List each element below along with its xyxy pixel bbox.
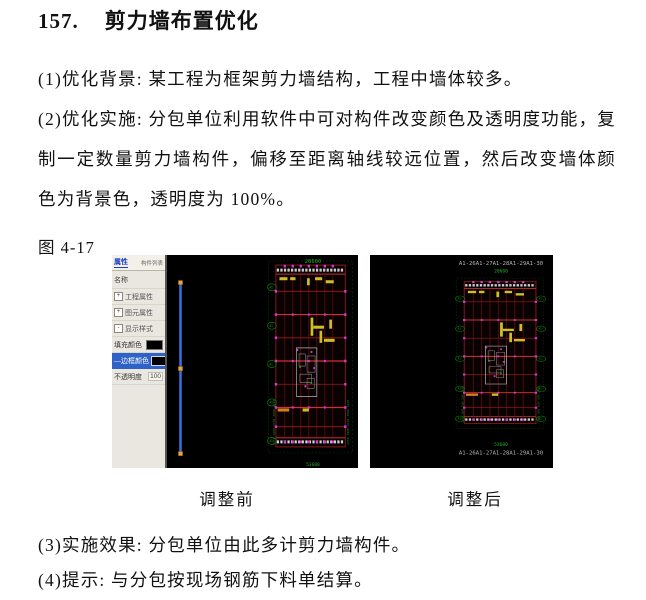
heading-title: 剪力墙布置优化 (105, 9, 259, 33)
dimension-top: 20600 (305, 259, 322, 265)
expand-icon[interactable]: + (114, 308, 123, 317)
floor-plan-after: 2450 3800 2450 3800 24502450 3800 2450 3… (455, 278, 545, 428)
tab-properties[interactable]: 属性 (114, 257, 128, 268)
property-group-element[interactable]: + 图元属性 (112, 305, 165, 321)
heading-number: 157. (38, 9, 79, 33)
svg-text:A1-: A1- (458, 387, 463, 391)
property-row-name[interactable]: 名称 (112, 271, 165, 289)
expand-icon[interactable]: + (114, 292, 123, 301)
fill-color-swatch[interactable] (146, 340, 163, 350)
svg-text:A1-: A1- (458, 297, 463, 301)
border-color-swatch[interactable] (151, 356, 165, 366)
properties-panel-header: 属性 构件列表 (112, 255, 165, 271)
screenshot-before: 属性 构件列表 名称 + 工程属性 + 图元属性 - 显示样式 填充颜色 —边框… (112, 255, 358, 468)
paragraph-tip: (4)提示: 与分包按现场钢筋下料单结算。 (38, 560, 616, 600)
cad-canvas-after: A1-26A1-27A1-28A1-29A1-30 20600 2450 380… (370, 255, 553, 468)
caption-after: 调整后 (420, 486, 530, 510)
paragraph-implementation: (2)优化实施: 分包单位利用软件中可对构件改变颜色及透明度功能，复制一定数量剪… (38, 99, 616, 219)
paragraph-effect: (3)实施效果: 分包单位由此多计剪力墙构件。 (38, 525, 616, 565)
figure-4-17: 属性 构件列表 名称 + 工程属性 + 图元属性 - 显示样式 填充颜色 —边框… (112, 255, 553, 468)
svg-text:A1-: A1- (269, 439, 274, 443)
property-group-display-style[interactable]: - 显示样式 (112, 321, 165, 337)
svg-text:A1-: A1- (458, 417, 463, 421)
property-row-opacity[interactable]: 不透明度 100 (112, 369, 165, 385)
svg-text:A1-: A1- (539, 357, 544, 361)
cad-canvas-before: 2450 3800 2450 3800 24502450 3800 2450 3… (167, 255, 358, 468)
svg-text:A1-: A1- (539, 417, 544, 421)
tab-component-list[interactable]: 构件列表 (141, 259, 163, 267)
axis-row-bottom: A1-26A1-27A1-28A1-29A1-30 (459, 451, 543, 457)
property-row-border-color[interactable]: —边框颜色 (112, 353, 165, 369)
svg-text:2450 3800 2450 3800 2450: 2450 3800 2450 3800 2450 (346, 400, 350, 445)
floor-plan-before: 2450 3800 2450 3800 24502450 3800 2450 3… (267, 261, 352, 453)
dimension-top: 20600 (494, 269, 508, 275)
svg-text:A1-: A1- (269, 285, 274, 289)
opacity-value[interactable]: 100 (148, 372, 163, 381)
svg-text:A1-: A1- (539, 327, 544, 331)
dimension-bottom: 53600 (494, 442, 508, 448)
screenshot-after: A1-26A1-27A1-28A1-29A1-30 20600 2450 380… (370, 255, 553, 468)
page-title: 157.剪力墙布置优化 (38, 5, 259, 35)
svg-text:A1-: A1- (269, 324, 274, 328)
properties-panel: 属性 构件列表 名称 + 工程属性 + 图元属性 - 显示样式 填充颜色 —边框… (112, 255, 167, 468)
paragraph-background: (1)优化背景: 某工程为框架剪力墙结构，工程中墙体较多。 (38, 59, 616, 99)
svg-text:A1-: A1- (458, 327, 463, 331)
svg-text:A1-: A1- (458, 357, 463, 361)
svg-text:A1-: A1- (539, 297, 544, 301)
svg-text:A1-: A1- (539, 387, 544, 391)
axis-row-top: A1-26A1-27A1-28A1-29A1-30 (459, 261, 543, 267)
tree-dash: — (114, 358, 121, 365)
figure-label: 图 4-17 (38, 234, 95, 258)
svg-text:A1-: A1- (269, 400, 274, 404)
svg-text:A1-: A1- (269, 362, 274, 366)
dimension-bottom: 53600 (306, 462, 320, 468)
collapse-icon[interactable]: - (114, 324, 123, 333)
property-group-project[interactable]: + 工程属性 (112, 289, 165, 305)
caption-before: 调整前 (172, 486, 282, 510)
property-row-fill-color[interactable]: 填充颜色 (112, 337, 165, 353)
